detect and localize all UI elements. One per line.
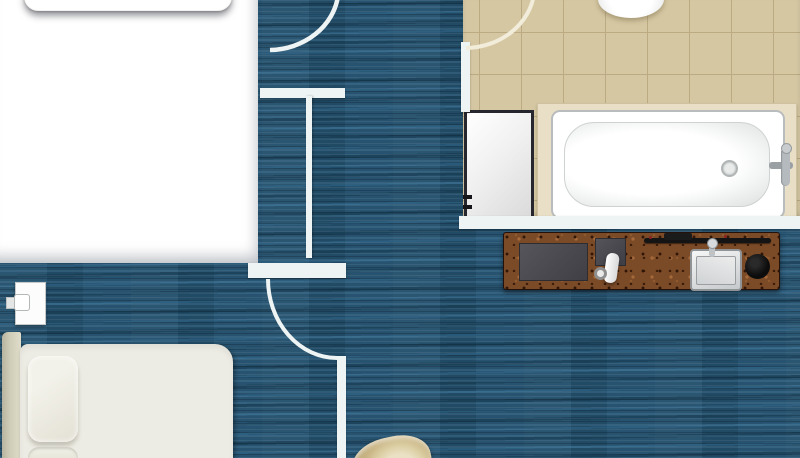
cooktop[interactable] — [519, 243, 588, 281]
kitchen-counter[interactable] — [503, 232, 780, 290]
bathtub-faucet-knob — [781, 143, 792, 154]
wall-hall — [260, 88, 345, 98]
shower-unit[interactable] — [464, 110, 534, 226]
wall-bathroom-left — [461, 42, 470, 112]
steel-sink[interactable] — [690, 249, 742, 291]
wall-bedroom-top — [248, 263, 346, 278]
double-bed[interactable] — [20, 344, 233, 458]
bathtub-rim — [551, 110, 785, 219]
radiator-knob-icon — [14, 294, 30, 311]
bathtub-basin — [564, 122, 770, 207]
mini-sink-spout-icon — [594, 267, 607, 280]
hinge-icon — [463, 195, 472, 199]
hinge-icon — [463, 205, 472, 209]
pillow-partial — [28, 447, 78, 458]
floor-plan — [0, 0, 800, 458]
wall-bathroom-bottom — [459, 216, 800, 229]
mini-sink-faucet-icon — [603, 252, 620, 284]
bed-headboard — [2, 332, 21, 458]
white-room — [0, 0, 258, 263]
steel-sink-knob-icon — [707, 238, 718, 249]
rail-dot-icon — [649, 236, 652, 239]
pillow — [28, 356, 78, 442]
burner-plate[interactable] — [745, 254, 770, 279]
rail-dot-icon — [724, 235, 727, 238]
top-furniture[interactable] — [24, 0, 232, 11]
wall-partition — [306, 96, 312, 258]
bathtub-drain-icon — [721, 160, 738, 177]
wall-bedroom-right — [337, 356, 346, 458]
utensil-rail-bracket — [664, 233, 692, 240]
bathtub[interactable] — [537, 103, 797, 224]
steel-sink-basin — [696, 256, 736, 285]
